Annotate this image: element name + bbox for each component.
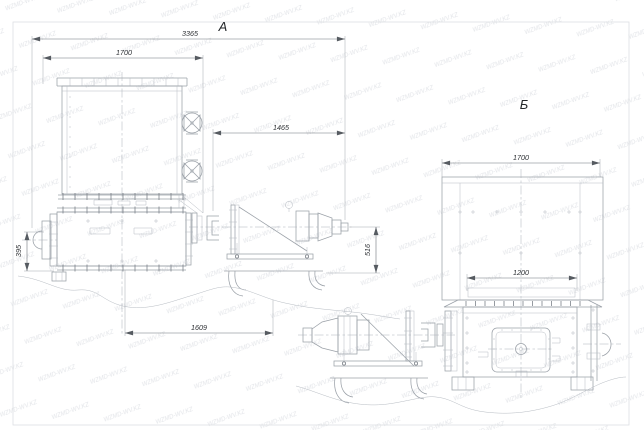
dim-opening-width-value: 1200	[513, 268, 529, 277]
dim-overall-length-value: 3365	[182, 29, 199, 38]
dim-inlet-height-value: 395	[14, 244, 23, 257]
dim-hopper-width-b-value: 1700	[513, 153, 529, 162]
technical-drawing-canvas: WZMD-WV.KZ WZMD-WV.KZ	[0, 0, 644, 430]
watermark-pattern	[0, 0, 644, 430]
view-b-label: Б	[520, 97, 529, 112]
dim-hopper-width-a-value: 1700	[116, 48, 132, 57]
drawing-sheet: WZMD-WV.KZ WZMD-WV.KZ	[0, 0, 644, 430]
dim-axis-height-value: 516	[363, 244, 372, 256]
view-a-label: A	[218, 19, 228, 34]
dim-drive-reach-value: 1465	[273, 123, 290, 132]
dim-base-span-value: 1609	[191, 323, 207, 332]
